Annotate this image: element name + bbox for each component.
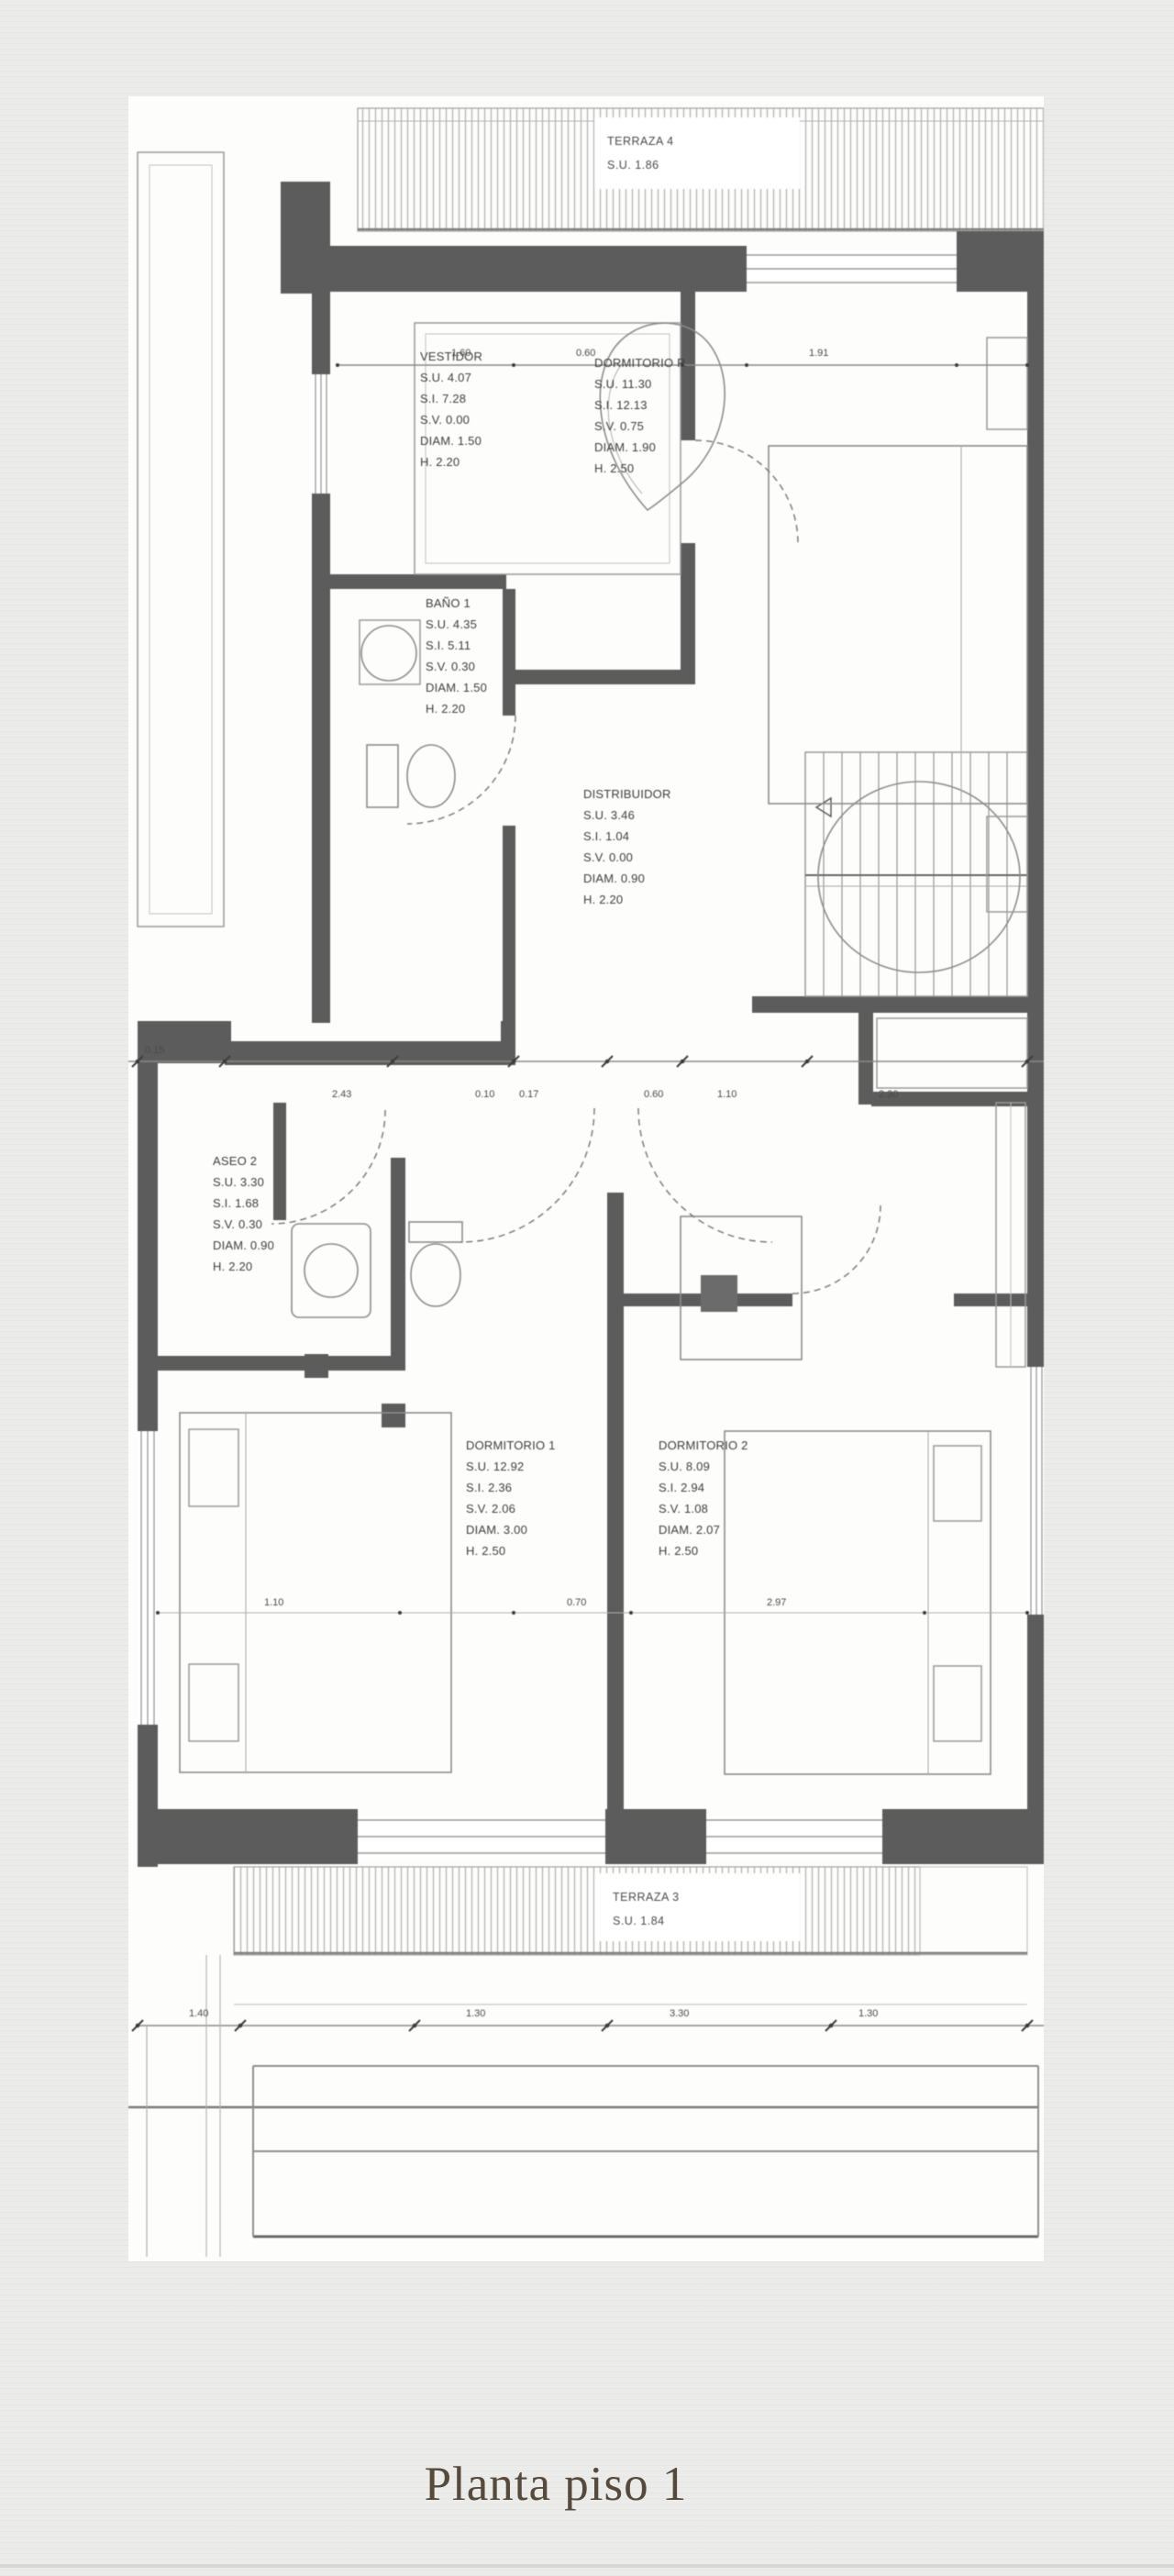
door-arc <box>695 440 798 543</box>
room-stat: S.I. 2.36 <box>466 1481 512 1494</box>
door-arc <box>638 1108 772 1242</box>
dim-label: 2.43 <box>332 1089 351 1100</box>
dim-label: 1.10 <box>717 1089 737 1100</box>
room-name: DORMITORIO P. <box>594 356 687 370</box>
room-label-dormitorio1: DORMITORIO 1 S.U. 12.92 S.I. 2.36 S.V. 2… <box>466 1438 556 1558</box>
pillow <box>934 1666 981 1741</box>
room-stat: DIAM. 1.50 <box>420 434 482 448</box>
dim-label: 1.91 <box>809 348 828 359</box>
dimension-lines <box>128 363 1044 2031</box>
floor-plan-drawing: TERRAZA 4 S.U. 1.86 <box>128 96 1044 2261</box>
room-label-bano1: BAÑO 1 S.U. 4.35 S.I. 5.11 S.V. 0.30 DIA… <box>426 596 487 716</box>
terrace-name: TERRAZA 3 <box>613 1891 680 1904</box>
room-stat: S.I. 7.28 <box>420 392 466 405</box>
terrace-bottom-hatch <box>234 1867 920 1955</box>
room-stat: DIAM. 1.50 <box>426 681 487 694</box>
sink-basin <box>305 1244 358 1297</box>
terrace-area: S.U. 1.86 <box>607 159 659 172</box>
dim-label: 1.60 <box>451 348 471 359</box>
room-stat: S.I. 12.13 <box>594 398 648 412</box>
dim-label: 0.17 <box>519 1089 538 1100</box>
room-stat: DIAM. 1.90 <box>594 440 656 454</box>
terrace-top: TERRAZA 4 S.U. 1.86 <box>358 108 1044 231</box>
shower-fan-shape <box>600 323 725 510</box>
room-stat: DIAM. 0.90 <box>583 872 645 885</box>
aseo-fixtures <box>292 1222 462 1317</box>
terrace-area: S.U. 1.84 <box>613 1915 665 1927</box>
sink-basin <box>361 626 416 681</box>
window-bottom-2 <box>706 1815 882 1859</box>
stair-handrail <box>818 782 1020 972</box>
room-name: DORMITORIO 1 <box>466 1438 556 1452</box>
room-stat: S.V. 0.00 <box>583 850 633 864</box>
section-band <box>128 1955 1038 2257</box>
room-stat: S.I. 1.68 <box>213 1196 259 1210</box>
toilet-tank <box>367 745 398 807</box>
room-stat: S.V. 0.30 <box>213 1217 262 1231</box>
room-label-distribuidor: DISTRIBUIDOR S.U. 3.46 S.I. 1.04 S.V. 0.… <box>583 787 671 906</box>
room-stat: S.U. 12.92 <box>466 1460 524 1473</box>
window-left-lower <box>138 1431 158 1725</box>
terrace-bottom-label-box <box>594 1873 800 1941</box>
wardrobe-strip <box>996 1103 1025 1367</box>
room-stat: S.U. 3.46 <box>583 808 635 822</box>
room-name: BAÑO 1 <box>426 596 471 610</box>
room-stat: S.I. 2.94 <box>659 1481 704 1494</box>
column <box>382 1404 405 1427</box>
dim-label: 0.60 <box>644 1089 663 1100</box>
dim-label: 0.15 <box>145 1045 164 1056</box>
toilet-tank <box>409 1222 462 1242</box>
dim-label: 2.30 <box>879 1089 898 1100</box>
room-stat: DIAM. 0.90 <box>213 1238 274 1252</box>
adjacent-structure <box>138 152 224 927</box>
sink-counter <box>360 620 420 684</box>
dim-label: 1.30 <box>466 2008 485 2019</box>
door-arc <box>792 1205 880 1294</box>
room-name: DISTRIBUIDOR <box>583 787 671 801</box>
pillow <box>189 1664 238 1741</box>
room-stat: S.U. 3.30 <box>213 1175 264 1189</box>
floor-plan-sheet: TERRAZA 4 S.U. 1.86 <box>128 96 1044 2261</box>
room-stat: H. 2.50 <box>659 1544 698 1558</box>
room-label-vestidor: VESTIDOR S.U. 4.07 S.I. 7.28 S.V. 0.00 D… <box>420 350 482 469</box>
terrace-bottom: TERRAZA 3 S.U. 1.84 <box>234 1867 1027 1955</box>
room-stat: DIAM. 3.00 <box>466 1523 527 1537</box>
room-name: ASEO 2 <box>213 1154 257 1168</box>
walls <box>138 182 1044 1867</box>
room-name: DORMITORIO 2 <box>659 1438 748 1452</box>
dim-label: 1.40 <box>189 2008 208 2019</box>
page-title: Planta piso 1 <box>0 2457 1112 2512</box>
room-stat: H. 2.50 <box>594 461 634 475</box>
window-right-lower <box>1027 1367 1044 1615</box>
pillow <box>934 1446 981 1521</box>
room-stat: S.U. 8.09 <box>659 1460 710 1473</box>
sink-counter <box>292 1224 371 1317</box>
room-stat: S.V. 0.30 <box>426 660 475 673</box>
shower-drain <box>305 1354 328 1378</box>
room-stat: DIAM. 2.07 <box>659 1523 720 1537</box>
terrace-top-label-box <box>594 117 800 189</box>
dim-label: 1.30 <box>858 2008 878 2019</box>
page-bottom-divider <box>0 2564 1174 2568</box>
terrace-name: TERRAZA 4 <box>607 135 674 148</box>
room-stat: S.V. 1.08 <box>659 1502 708 1516</box>
window-top <box>747 251 957 286</box>
window-left-upper <box>312 374 330 494</box>
room-stat: S.V. 2.06 <box>466 1502 515 1516</box>
door-arc <box>460 1108 594 1242</box>
window-bottom-1 <box>358 1815 605 1859</box>
room-stat: S.V. 0.75 <box>594 419 644 433</box>
room-stat: S.U. 11.30 <box>594 377 651 391</box>
toilet-bowl <box>411 1244 460 1306</box>
room-stat: S.U. 4.35 <box>426 617 477 631</box>
room-stat: H. 2.20 <box>213 1260 252 1273</box>
room-stat: S.V. 0.00 <box>420 413 470 427</box>
dim-label: 2.97 <box>767 1597 786 1608</box>
dim-label: 3.30 <box>670 2008 689 2019</box>
under-stair-closet <box>877 1018 1027 1088</box>
pillow <box>189 1429 238 1506</box>
dim-label: 1.10 <box>264 1597 283 1608</box>
dim-label: 0.70 <box>567 1597 586 1608</box>
nightstand <box>987 338 1027 429</box>
bed-dorm2 <box>725 1431 991 1774</box>
dim-label: 0.60 <box>576 348 595 359</box>
dim-label: 0.10 <box>475 1089 494 1100</box>
room-stat: H. 2.20 <box>426 702 465 716</box>
room-stat: S.U. 4.07 <box>420 371 471 384</box>
room-stat: H. 2.20 <box>420 455 460 469</box>
door-arcs <box>271 440 880 1294</box>
staircase <box>805 752 1027 1088</box>
door-arc <box>407 716 515 824</box>
room-label-dormitorio2: DORMITORIO 2 S.U. 8.09 S.I. 2.94 S.V. 1.… <box>659 1438 748 1558</box>
toilet-bowl <box>407 745 455 807</box>
room-stat: S.I. 5.11 <box>426 638 471 652</box>
room-stat: H. 2.50 <box>466 1544 505 1558</box>
bed-dorm1 <box>180 1413 451 1772</box>
room-label-aseo2: ASEO 2 S.U. 3.30 S.I. 1.68 S.V. 0.30 DIA… <box>213 1154 274 1273</box>
room-stat: H. 2.20 <box>583 893 623 906</box>
door-arc <box>271 1110 385 1224</box>
room-stat: S.I. 1.04 <box>583 829 629 843</box>
